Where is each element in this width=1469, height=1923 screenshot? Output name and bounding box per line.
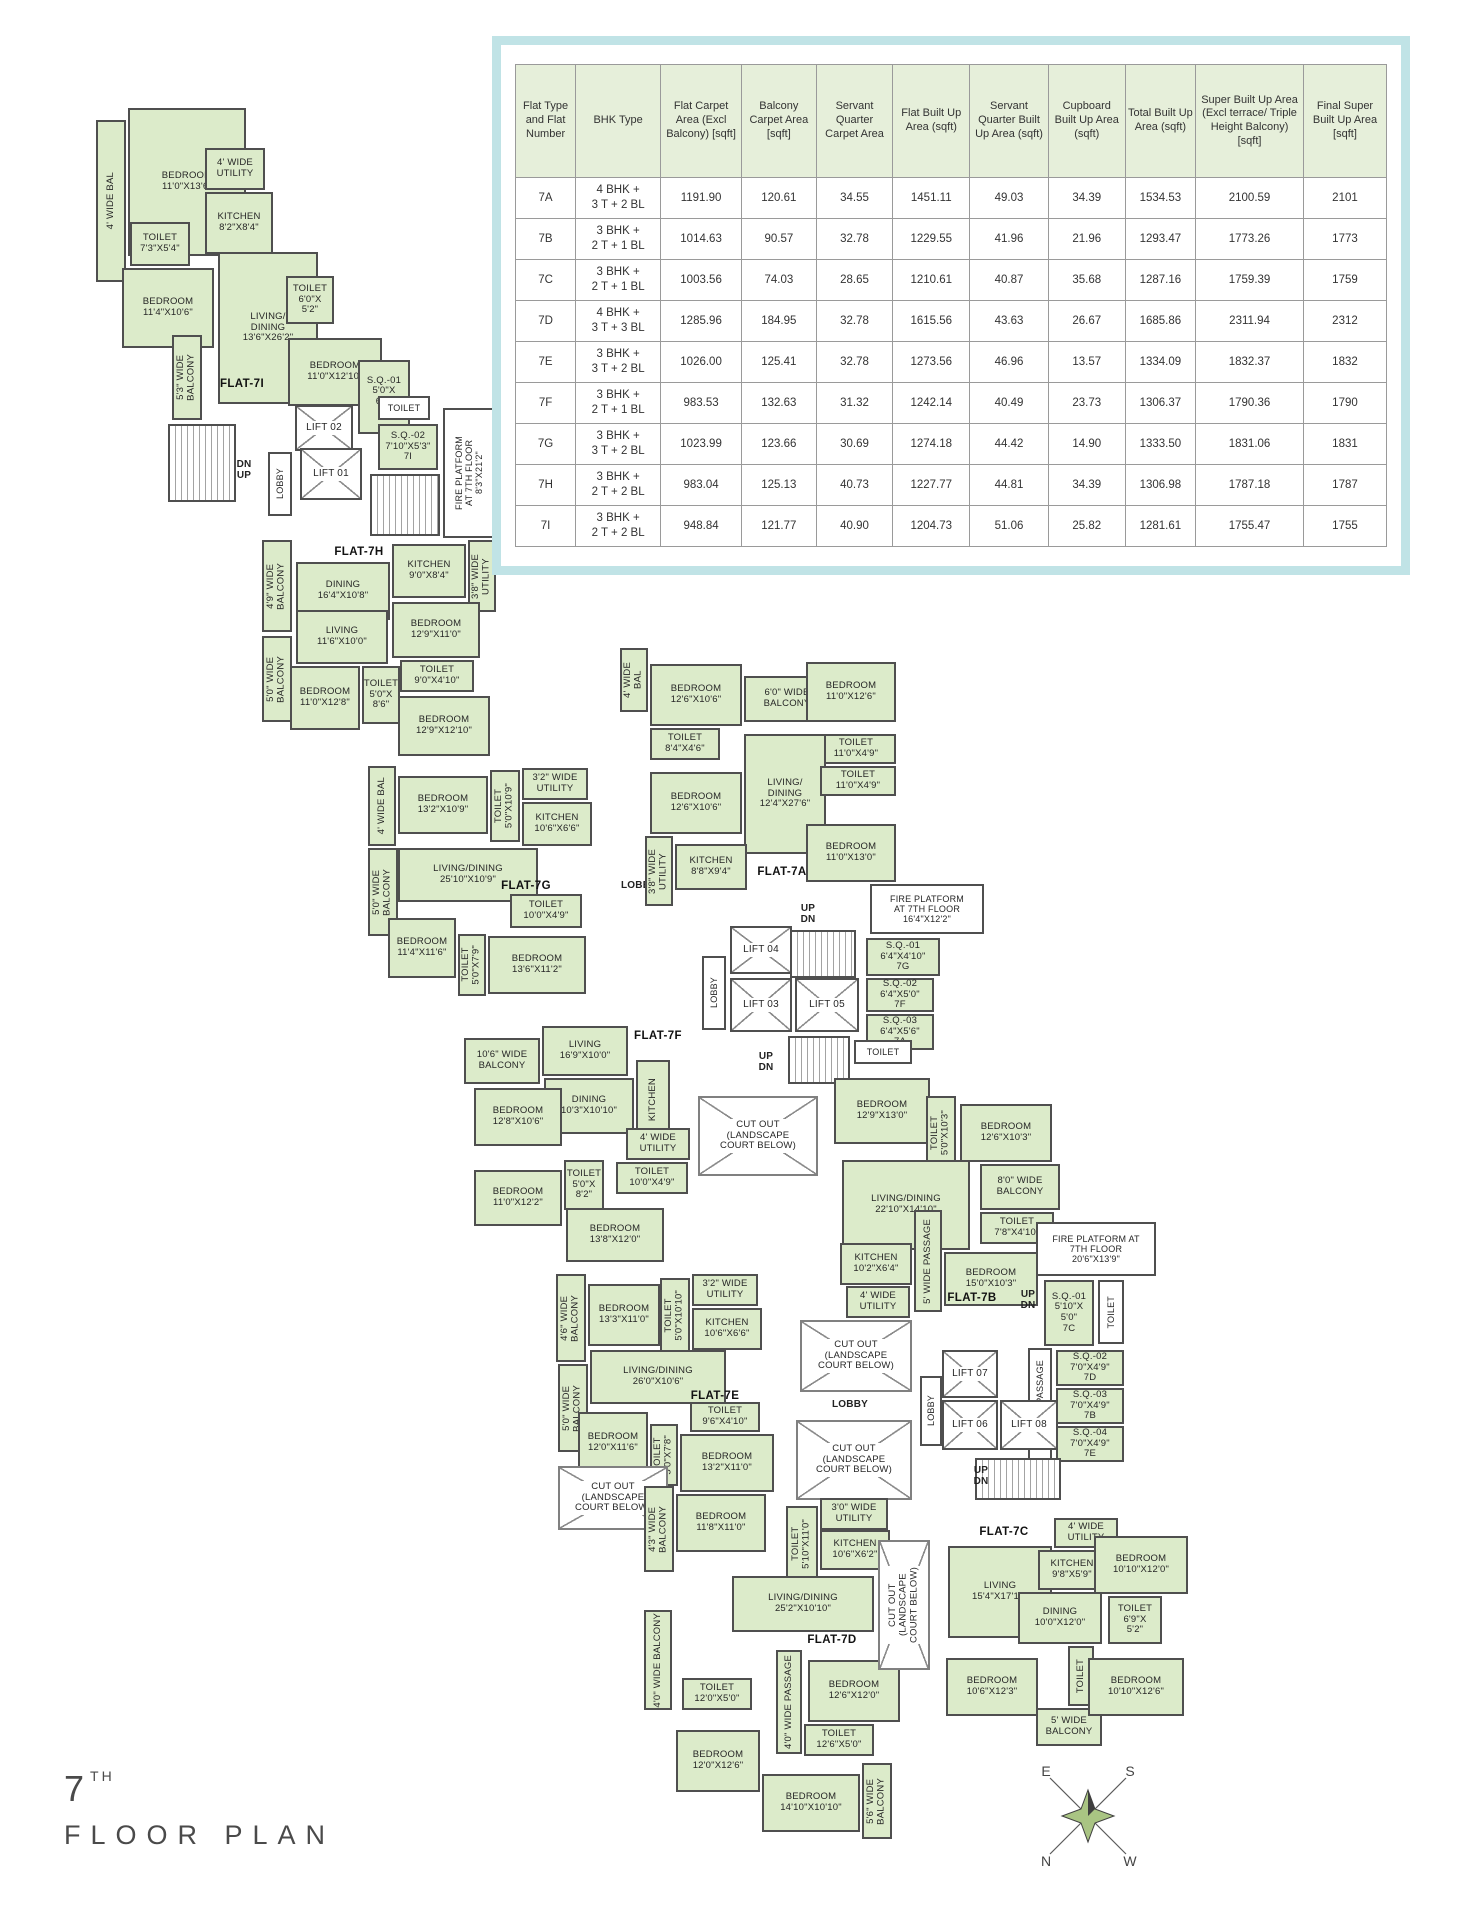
room-label: FLAT-7A (757, 866, 806, 879)
room-bedroom-10-6-x12-3: BEDROOM 10'6"X12'3" (946, 1658, 1038, 1716)
compass-e: E (1041, 1763, 1050, 1779)
room-label: BEDROOM 12'6"X10'6" (671, 792, 722, 813)
room-4-9-wide-balcony: 4'9" WIDE BALCONY (262, 540, 292, 632)
room-toilet-10-0-x4-9: TOILET 10'0"X4'9" (616, 1162, 688, 1194)
room-label: 10'6" WIDE BALCONY (477, 1050, 527, 1071)
room-kitchen-10-6-x6-6: KITCHEN 10'6"X6'6" (522, 802, 592, 846)
room-label: CUT OUT (LANDSCAPE COURT BELOW) (572, 1481, 654, 1515)
room-5-6-wide-balcony: 5'6" WIDE BALCONY (862, 1763, 892, 1839)
room-label: FLAT-7E (691, 1390, 740, 1403)
value-cell: 1534.53 (1125, 178, 1196, 219)
compass-s: S (1125, 1763, 1134, 1779)
room-4-wide-utility: 4' WIDE UTILITY (846, 1286, 910, 1318)
value-cell: 90.57 (742, 219, 817, 260)
value-cell: 43.63 (970, 301, 1049, 342)
room-label: KITCHEN (648, 1078, 659, 1121)
cutout-cut-out-landscape-court-below: CUT OUT (LANDSCAPE COURT BELOW) (800, 1320, 912, 1392)
room-bedroom-12-9-x11-0: BEDROOM 12'9"X11'0" (392, 602, 480, 658)
room-toilet-6-0-x-5-2: TOILET 6'0"X 5'2" (286, 276, 334, 324)
value-cell: 1273.56 (893, 342, 970, 383)
room-label: 4' WIDE UTILITY (640, 1133, 677, 1154)
value-cell: 44.42 (970, 424, 1049, 465)
value-cell: 1306.98 (1125, 465, 1196, 506)
table-row: 7G3 BHK + 3 T + 2 BL1023.99123.6630.6912… (516, 424, 1387, 465)
room-label: LIVING/DINING 25'10"X10'9" (433, 864, 503, 885)
core-area-toilet: TOILET (1098, 1280, 1124, 1344)
header-cell: Final Super Built Up Area [sqft] (1303, 65, 1386, 178)
stairs (788, 1036, 850, 1084)
value-cell: 44.81 (970, 465, 1049, 506)
room-toilet-12-6-x5-0: TOILET 12'6"X5'0" (804, 1724, 874, 1756)
room-toilet-10-0-x4-9: TOILET 10'0"X4'9" (510, 894, 582, 928)
room-label: BEDROOM 13'2"X10'9" (418, 794, 469, 815)
bhk-cell: 3 BHK + 2 T + 2 BL (576, 506, 661, 547)
room-label: BEDROOM 10'6"X12'3" (967, 1676, 1018, 1697)
room-label: 3'8" WIDE UTILITY (648, 849, 669, 894)
value-cell: 1229.55 (893, 219, 970, 260)
area-table-head: Flat Type and Flat NumberBHK TypeFlat Ca… (516, 65, 1387, 178)
value-cell: 1287.16 (1125, 260, 1196, 301)
room-label: DINING 10'3"X10'10" (561, 1095, 617, 1116)
room-label: BEDROOM 12'6"X10'3" (981, 1122, 1032, 1143)
room-label: DINING 16'4"X10'8" (318, 580, 369, 601)
header-cell: Super Built Up Area (Excl terrace/ Tripl… (1196, 65, 1304, 178)
room-label: LIVING/DINING 26'0"X10'6" (623, 1366, 693, 1387)
room-label: KITCHEN 10'6"X6'2" (832, 1539, 877, 1560)
value-cell: 132.63 (742, 383, 817, 424)
value-cell: 14.90 (1048, 424, 1125, 465)
value-cell: 31.32 (816, 383, 893, 424)
cutout-cut-out-landscape-court-below: CUT OUT (LANDSCAPE COURT BELOW) (878, 1540, 930, 1670)
value-cell: 2311.94 (1196, 301, 1304, 342)
room-label: BEDROOM 11'4"X10'6" (143, 297, 194, 318)
flat-label-flat-7i: FLAT-7I (210, 376, 274, 392)
header-cell: Flat Type and Flat Number (516, 65, 576, 178)
cutout-cut-out-landscape-court-below: CUT OUT (LANDSCAPE COURT BELOW) (796, 1420, 912, 1500)
table-row: 7E3 BHK + 3 T + 2 BL1026.00125.4132.7812… (516, 342, 1387, 383)
core-area-toilet: TOILET (854, 1040, 912, 1064)
lift-lift-04: LIFT 04 (730, 926, 792, 974)
room-label: 4'0" WIDE PASSAGE (784, 1655, 795, 1749)
value-cell: 1790.36 (1196, 383, 1304, 424)
page-title: 7TH FLOOR PLAN (64, 1768, 335, 1851)
floor-number-ordinal: TH (90, 1768, 115, 1784)
table-row: 7B3 BHK + 2 T + 1 BL1014.6390.5732.78122… (516, 219, 1387, 260)
value-cell: 1274.18 (893, 424, 970, 465)
room-label: BEDROOM 13'2"X11'0" (702, 1452, 753, 1473)
room-label: 4' WIDE BAL (623, 662, 644, 698)
core-area-lobby: LOBBY (920, 1376, 942, 1446)
table-row: 7I3 BHK + 2 T + 2 BL948.84121.7740.90120… (516, 506, 1387, 547)
room-label: TOILET (388, 403, 421, 413)
room-toilet-8-4-x4-6: TOILET 8'4"X4'6" (650, 728, 720, 760)
room-label: KITCHEN 10'6"X6'6" (704, 1318, 749, 1339)
value-cell: 1334.09 (1125, 342, 1196, 383)
room-toilet-12-0-x5-0: TOILET 12'0"X5'0" (682, 1678, 752, 1710)
room-label: S.Q.-04 7'0"X4'9" 7E (1070, 1428, 1110, 1460)
room-toilet-11-0-x4-9: TOILET 11'0"X4'9" (820, 766, 896, 796)
room-toilet-5-10-x11-0: TOILET 5'10"X11'0" (786, 1506, 818, 1582)
value-cell: 34.55 (816, 178, 893, 219)
room-label: 5'0" WIDE BALCONY (372, 869, 393, 916)
room-label: S.Q.-01 6'4"X4'10" 7G (880, 941, 925, 973)
bhk-cell: 3 BHK + 2 T + 1 BL (576, 260, 661, 301)
room-s-q-02-7-0-x4-9-7d: S.Q.-02 7'0"X4'9" 7D (1056, 1350, 1124, 1386)
flat-cell: 7G (516, 424, 576, 465)
room-label: BEDROOM 12'9"X13'0" (857, 1100, 908, 1121)
room-s-q-04-7-0-x4-9-7e: S.Q.-04 7'0"X4'9" 7E (1056, 1426, 1124, 1462)
room-label: FLAT-7I (220, 378, 264, 391)
value-cell: 1787.18 (1196, 465, 1304, 506)
header-cell: Total Built Up Area (sqft) (1125, 65, 1196, 178)
room-label: LIVING/ DINING 12'4"X27'6" (760, 778, 811, 810)
area-table-frame: Flat Type and Flat NumberBHK TypeFlat Ca… (492, 36, 1410, 575)
value-cell: 1685.86 (1125, 301, 1196, 342)
room-kitchen-8-2-x8-4: KITCHEN 8'2"X8'4" (205, 192, 273, 254)
room-label: CUT OUT (LANDSCAPE COURT BELOW) (813, 1443, 895, 1477)
room-label: BEDROOM 12'8"X10'6" (493, 1106, 544, 1127)
value-cell: 948.84 (661, 506, 742, 547)
room-label: FIRE PLATFORM AT 7TH FLOOR 20'6"X13'9" (1052, 1234, 1139, 1264)
room-bedroom-13-8-x12-0: BEDROOM 13'8"X12'0" (566, 1208, 664, 1262)
area-table: Flat Type and Flat NumberBHK TypeFlat Ca… (515, 64, 1387, 547)
room-label: TOILET (1076, 1659, 1087, 1693)
room-label: UP DN (1021, 1289, 1036, 1311)
room-living-11-6-x10-0: LIVING 11'6"X10'0" (296, 610, 388, 664)
room-bedroom-12-6-x10-6: BEDROOM 12'6"X10'6" (650, 664, 742, 726)
room-3-0-wide-utility: 3'0" WIDE UTILITY (820, 1498, 888, 1530)
value-cell: 1773.26 (1196, 219, 1304, 260)
value-cell: 1204.73 (893, 506, 970, 547)
room-label: LIFT 02 (303, 421, 345, 434)
room-label: 3'2" WIDE UTILITY (533, 773, 578, 794)
room-label: 3'0" WIDE UTILITY (832, 1503, 877, 1524)
room-label: UP DN (759, 1051, 774, 1073)
value-cell: 1191.90 (661, 178, 742, 219)
table-row: 7F3 BHK + 2 T + 1 BL983.53132.6331.32124… (516, 383, 1387, 424)
room-4-0-wide-passage: 4'0" WIDE PASSAGE (776, 1650, 802, 1754)
room-label: S.Q.-02 7'10"X5'3" 7I (385, 431, 430, 463)
value-cell: 120.61 (742, 178, 817, 219)
room-4-6-wide-balcony: 4'6" WIDE BALCONY (556, 1274, 586, 1362)
room-label: TOILET 7'8"X4'10" (994, 1217, 1039, 1238)
room-label: S.Q.-02 6'4"X5'0" 7F (880, 979, 920, 1011)
value-cell: 1790 (1303, 383, 1386, 424)
room-label: LOBBY (709, 977, 719, 1008)
text-label-lobby: LOBBY (812, 1394, 888, 1416)
flat-cell: 7C (516, 260, 576, 301)
core-area-fire-platform-at-7th-floor-8-3-x21-2: FIRE PLATFORM AT 7TH FLOOR 8'3"X21'2" (443, 408, 495, 538)
room-label: 4'3" WIDE BALCONY (648, 1506, 669, 1553)
stairs (790, 930, 856, 978)
room-label: BEDROOM 13'6"X11'2" (512, 954, 563, 975)
room-label: LOBBY (832, 1399, 868, 1410)
room-bedroom-11-0-x12-8: BEDROOM 11'0"X12'8" (290, 666, 360, 730)
room-label: 4'6" WIDE BALCONY (560, 1295, 581, 1342)
header-cell: Cupboard Built Up Area (sqft) (1048, 65, 1125, 178)
room-3-8-wide-utility: 3'8" WIDE UTILITY (645, 836, 673, 906)
room-label: 8'0" WIDE BALCONY (997, 1176, 1044, 1197)
lift-lift-03: LIFT 03 (730, 978, 792, 1032)
room-label: UP DN (974, 1465, 989, 1487)
room-bedroom-11-8-x11-0: BEDROOM 11'8"X11'0" (676, 1494, 766, 1552)
room-label: TOILET 10'0"X4'9" (523, 900, 568, 921)
table-row: 7C3 BHK + 2 T + 1 BL1003.5674.0328.65121… (516, 260, 1387, 301)
value-cell: 1227.77 (893, 465, 970, 506)
room-s-q-01-5-10-x-5-0-7c: S.Q.-01 5'10"X 5'0" 7C (1044, 1280, 1094, 1346)
value-cell: 983.53 (661, 383, 742, 424)
room-label: CUT OUT (LANDSCAPE COURT BELOW) (885, 1566, 923, 1644)
flat-cell: 7I (516, 506, 576, 547)
value-cell: 34.39 (1048, 178, 1125, 219)
value-cell: 46.96 (970, 342, 1049, 383)
value-cell: 1285.96 (661, 301, 742, 342)
room-8-0-wide-balcony: 8'0" WIDE BALCONY (980, 1164, 1060, 1210)
room-bedroom-12-6-x10-6: BEDROOM 12'6"X10'6" (650, 772, 742, 834)
value-cell: 983.04 (661, 465, 742, 506)
room-label: BEDROOM 11'0"X12'10" (307, 361, 362, 382)
value-cell: 1832.37 (1196, 342, 1304, 383)
floor-number: 7TH (64, 1768, 335, 1810)
core-area-fire-platform-at-7th-floor-16-4-x12-2: FIRE PLATFORM AT 7TH FLOOR 16'4"X12'2" (870, 884, 984, 934)
value-cell: 1832 (1303, 342, 1386, 383)
room-label: BEDROOM 12'6"X10'6" (671, 684, 722, 705)
lift-lift-02: LIFT 02 (295, 405, 353, 451)
header-cell: Flat Carpet Area (Excl Balcony) [sqft] (661, 65, 742, 178)
room-label: S.Q.-02 7'0"X4'9" 7D (1070, 1352, 1110, 1384)
room-label: BEDROOM 12'9"X12'10" (416, 715, 472, 736)
room-5-0-wide-balcony: 5'0" WIDE BALCONY (262, 636, 292, 722)
room-label: LIFT 06 (949, 1418, 991, 1431)
value-cell: 1615.56 (893, 301, 970, 342)
value-cell: 1014.63 (661, 219, 742, 260)
room-label: BEDROOM 12'0"X12'6" (693, 1750, 744, 1771)
room-label: 3'2" WIDE UTILITY (703, 1279, 748, 1300)
core-area-lobby: LOBBY (268, 452, 292, 516)
room-s-q-01-6-4-x4-10-7g: S.Q.-01 6'4"X4'10" 7G (866, 938, 940, 976)
compass-icon: E S N W (1028, 1756, 1148, 1876)
value-cell: 123.66 (742, 424, 817, 465)
compass-w: W (1123, 1853, 1137, 1869)
flat-label-flat-7d: FLAT-7D (800, 1632, 864, 1648)
flat-cell: 7D (516, 301, 576, 342)
value-cell: 184.95 (742, 301, 817, 342)
room-label: TOILET 5'0"X10'10" (664, 1290, 685, 1341)
room-s-q-02-6-4-x5-0-7f: S.Q.-02 6'4"X5'0" 7F (866, 978, 934, 1012)
room-toilet-5-0-x10-10: TOILET 5'0"X10'10" (660, 1278, 690, 1352)
room-dining-10-0-x12-0: DINING 10'0"X12'0" (1018, 1592, 1102, 1644)
room-label: TOILET 6'0"X 5'2" (293, 284, 327, 316)
core-area-fire-platform-at-7th-floor-20-6-x13-9: FIRE PLATFORM AT 7TH FLOOR 20'6"X13'9" (1036, 1222, 1156, 1276)
flat-label-flat-7b: FLAT-7B (940, 1290, 1004, 1306)
room-label: TOILET 8'4"X4'6" (665, 733, 705, 754)
cutout-cut-out-landscape-court-below: CUT OUT (LANDSCAPE COURT BELOW) (698, 1096, 818, 1176)
room-toilet-9-0-x4-10: TOILET 9'0"X4'10" (400, 660, 474, 692)
value-cell: 51.06 (970, 506, 1049, 547)
room-bedroom-13-3-x11-0: BEDROOM 13'3"X11'0" (588, 1284, 660, 1346)
lift-lift-01: LIFT 01 (300, 448, 362, 500)
value-cell: 1773 (1303, 219, 1386, 260)
value-cell: 1787 (1303, 465, 1386, 506)
text-label-up-dn: UP DN (752, 1048, 780, 1076)
value-cell: 121.77 (742, 506, 817, 547)
room-label: TOILET 7'3"X5'4" (140, 233, 180, 254)
header-row: Flat Type and Flat NumberBHK TypeFlat Ca… (516, 65, 1387, 178)
value-cell: 1306.37 (1125, 383, 1196, 424)
core-area-lobby: LOBBY (702, 956, 726, 1030)
room-label: BEDROOM 14'10"X10'10" (780, 1792, 842, 1813)
room-label: 4' WIDE BAL (106, 172, 117, 229)
room-label: 4' WIDE UTILITY (217, 158, 254, 179)
room-label: 5' WIDE PASSAGE (923, 1219, 934, 1304)
room-label: S.Q.-01 5'10"X 5'0" 7C (1052, 1292, 1086, 1335)
room-label: KITCHEN 8'2"X8'4" (217, 212, 260, 233)
bhk-cell: 3 BHK + 3 T + 2 BL (576, 342, 661, 383)
room-label: KITCHEN 9'8"X5'9" (1050, 1559, 1093, 1580)
room-label: 5'0" WIDE BALCONY (266, 656, 287, 703)
room-label: BEDROOM 10'10"X12'6" (1108, 1676, 1164, 1697)
value-cell: 34.39 (1048, 465, 1125, 506)
flat-cell: 7A (516, 178, 576, 219)
room-label: TOILET 10'0"X4'9" (629, 1167, 674, 1188)
room-label: FLAT-7D (807, 1634, 856, 1647)
room-label: LIFT 01 (310, 467, 352, 480)
room-bedroom-12-0-x12-6: BEDROOM 12'0"X12'6" (676, 1730, 760, 1792)
value-cell: 2101 (1303, 178, 1386, 219)
header-cell: Flat Built Up Area (sqft) (893, 65, 970, 178)
room-label: FIRE PLATFORM AT 7TH FLOOR 8'3"X21'2" (454, 436, 484, 510)
stairs (370, 474, 440, 536)
table-row: 7D4 BHK + 3 T + 3 BL1285.96184.9532.7816… (516, 301, 1387, 342)
room-toilet-5-0-x10-3: TOILET 5'0"X10'3" (926, 1096, 956, 1170)
value-cell: 21.96 (1048, 219, 1125, 260)
room-toilet-6-9-x-5-2: TOILET 6'9"X 5'2" (1108, 1596, 1162, 1644)
room-label: 5' WIDE BALCONY (1046, 1716, 1093, 1737)
bhk-cell: 4 BHK + 3 T + 3 BL (576, 301, 661, 342)
room-label: TOILET 9'0"X4'10" (414, 665, 459, 686)
room-label: TOILET 9'6"X4'10" (702, 1406, 747, 1427)
room-bedroom-12-9-x13-0: BEDROOM 12'9"X13'0" (834, 1078, 930, 1144)
room-label: BEDROOM 11'4"X11'6" (397, 937, 448, 958)
value-cell: 32.78 (816, 301, 893, 342)
room-label: KITCHEN 10'6"X6'6" (534, 813, 579, 834)
value-cell: 125.13 (742, 465, 817, 506)
room-label: BEDROOM 15'0"X10'3" (966, 1268, 1017, 1289)
lift-lift-06: LIFT 06 (942, 1400, 998, 1450)
core-area-toilet: TOILET (378, 396, 430, 420)
value-cell: 1026.00 (661, 342, 742, 383)
value-cell: 49.03 (970, 178, 1049, 219)
value-cell: 30.69 (816, 424, 893, 465)
bhk-cell: 3 BHK + 3 T + 2 BL (576, 424, 661, 465)
value-cell: 1293.47 (1125, 219, 1196, 260)
value-cell: 23.73 (1048, 383, 1125, 424)
room-label: FLAT-7B (947, 1292, 996, 1305)
room-s-q-03-7-0-x4-9-7b: S.Q.-03 7'0"X4'9" 7B (1056, 1388, 1124, 1424)
value-cell: 40.49 (970, 383, 1049, 424)
room-kitchen-10-2-x6-4: KITCHEN 10'2"X6'4" (840, 1243, 912, 1285)
room-label: 5'6" WIDE BALCONY (866, 1778, 887, 1825)
room-3-2-wide-utility: 3'2" WIDE UTILITY (692, 1274, 758, 1306)
room-label: BEDROOM 13'8"X12'0" (590, 1224, 641, 1245)
room-label: TOILET 5'10"X11'0" (791, 1519, 812, 1569)
flat-label-flat-7f: FLAT-7F (626, 1028, 690, 1044)
header-cell: Balcony Carpet Area [sqft] (742, 65, 817, 178)
room-label: DINING 10'0"X12'0" (1035, 1607, 1086, 1628)
room-label: 3'8" WIDE UTILITY (471, 554, 492, 599)
room-bedroom-12-6-x10-3: BEDROOM 12'6"X10'3" (960, 1104, 1052, 1162)
room-kitchen-10-6-x6-6: KITCHEN 10'6"X6'6" (692, 1308, 762, 1350)
header-cell: Servant Quarter Built Up Area (sqft) (970, 65, 1049, 178)
room-bedroom-12-0-x11-6: BEDROOM 12'0"X11'6" (578, 1412, 648, 1474)
value-cell: 40.90 (816, 506, 893, 547)
room-label: LIFT 03 (740, 998, 782, 1011)
value-cell: 13.57 (1048, 342, 1125, 383)
room-label: FIRE PLATFORM AT 7TH FLOOR 16'4"X12'2" (890, 894, 964, 924)
room-label: LIVING 16'9"X10'0" (560, 1040, 611, 1061)
room-label: FLAT-7F (634, 1030, 682, 1043)
stairs (168, 424, 236, 502)
room-bedroom-11-0-x12-2: BEDROOM 11'0"X12'2" (474, 1170, 562, 1226)
value-cell: 1242.14 (893, 383, 970, 424)
value-cell: 2100.59 (1196, 178, 1304, 219)
room-label: LOBBY (275, 468, 285, 499)
room-3-2-wide-utility: 3'2" WIDE UTILITY (522, 768, 588, 800)
room-label: BEDROOM 13'3"X11'0" (599, 1304, 650, 1325)
room-label: 5'3" WIDE BALCONY (176, 354, 197, 401)
room-living-dining-22-10-x14-10: LIVING/DINING 22'10"X14'10" (842, 1160, 970, 1250)
room-label: KITCHEN 8'8"X9'4" (689, 856, 732, 877)
value-cell: 1759.39 (1196, 260, 1304, 301)
room-toilet-11-0-x4-9: TOILET 11'0"X4'9" (816, 734, 896, 764)
area-table-body: 7A4 BHK + 3 T + 2 BL1191.90120.6134.5514… (516, 178, 1387, 547)
value-cell: 1755 (1303, 506, 1386, 547)
room-label: BEDROOM 11'0"X12'6" (826, 681, 877, 702)
room-label: TOILET 11'0"X4'9" (836, 770, 880, 791)
value-cell: 1003.56 (661, 260, 742, 301)
compass-n: N (1041, 1853, 1051, 1869)
room-label: LIVING/DINING 25'2"X10'10" (768, 1593, 838, 1614)
room-4-wide-utility: 4' WIDE UTILITY (626, 1128, 690, 1160)
room-bedroom-11-4-x11-6: BEDROOM 11'4"X11'6" (388, 918, 456, 978)
room-bedroom-10-10-x12-6: BEDROOM 10'10"X12'6" (1088, 1658, 1184, 1716)
flat-label-flat-7c: FLAT-7C (972, 1524, 1036, 1540)
room-bedroom-12-8-x10-6: BEDROOM 12'8"X10'6" (474, 1088, 562, 1146)
value-cell: 125.41 (742, 342, 817, 383)
room-label: KITCHEN 9'0"X8'4" (407, 560, 450, 581)
room-4-wide-bal: 4' WIDE BAL (620, 648, 648, 712)
room-label: LIFT 08 (1008, 1418, 1050, 1431)
room-toilet-5-0-x-8-2: TOILET 5'0"X 8'2" (564, 1160, 604, 1210)
room-toilet-5-0-x7-9: TOILET 5'0"X7'9" (458, 934, 486, 996)
value-cell: 2312 (1303, 301, 1386, 342)
text-label-up-dn: UP DN (793, 900, 823, 928)
value-cell: 1451.11 (893, 178, 970, 219)
room-5-3-wide-balcony: 5'3" WIDE BALCONY (172, 335, 202, 420)
value-cell: 1281.61 (1125, 506, 1196, 547)
room-label: BEDROOM 11'0"X13'0" (826, 842, 877, 863)
room-toilet-7-3-x5-4: TOILET 7'3"X5'4" (130, 222, 190, 266)
room-bedroom-11-0-x13-0: BEDROOM 11'0"X13'0" (806, 824, 896, 882)
room-label: LIFT 07 (949, 1367, 991, 1380)
room-label: 4' WIDE UTILITY (860, 1291, 897, 1312)
room-label: CUT OUT (LANDSCAPE COURT BELOW) (815, 1339, 897, 1373)
value-cell: 1333.50 (1125, 424, 1196, 465)
room-4-wide-bal: 4' WIDE BAL (368, 766, 396, 846)
bhk-cell: 4 BHK + 3 T + 2 BL (576, 178, 661, 219)
value-cell: 28.65 (816, 260, 893, 301)
room-label: BEDROOM 11'8"X11'0" (696, 1512, 747, 1533)
